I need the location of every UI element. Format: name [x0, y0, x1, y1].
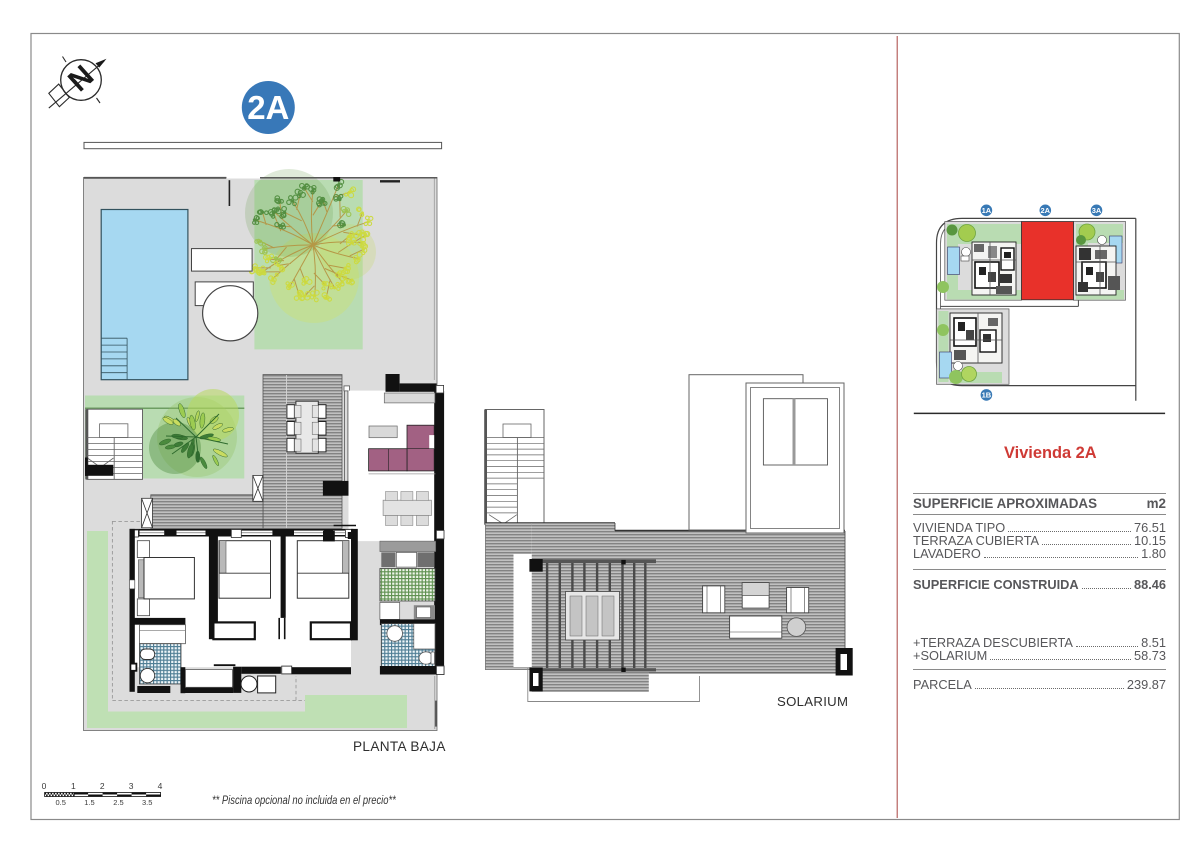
svg-text:3A: 3A: [1092, 206, 1102, 215]
svg-text:2A: 2A: [1041, 206, 1051, 215]
svg-text:2A: 2A: [247, 89, 289, 126]
svg-text:1B: 1B: [982, 391, 992, 400]
svg-text:1A: 1A: [982, 206, 992, 215]
